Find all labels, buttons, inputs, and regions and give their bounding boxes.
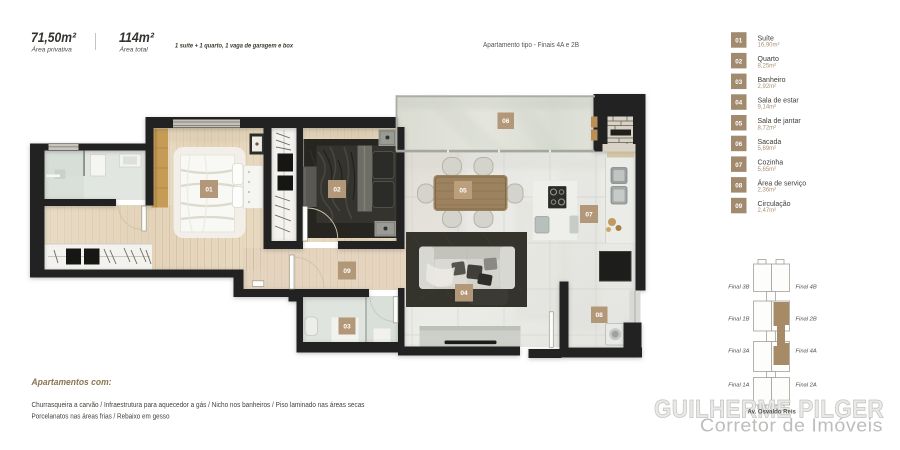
svg-text:08: 08 bbox=[735, 183, 742, 190]
svg-text:03: 03 bbox=[735, 79, 742, 86]
svg-text:Porcelanatos nas áreas frias /: Porcelanatos nas áreas frias / Rebaixo e… bbox=[32, 414, 170, 421]
svg-text:Área total: Área total bbox=[119, 45, 149, 54]
svg-text:03: 03 bbox=[343, 323, 351, 330]
svg-text:16,90m²: 16,90m² bbox=[758, 43, 780, 49]
svg-text:2,36m²: 2,36m² bbox=[758, 188, 777, 194]
svg-text:9,14m²: 9,14m² bbox=[758, 105, 777, 111]
svg-text:Suíte: Suíte bbox=[758, 35, 774, 42]
svg-text:Final 2A: Final 2A bbox=[796, 383, 817, 389]
svg-text:Final 2B: Final 2B bbox=[796, 317, 817, 323]
svg-text:8,72m²: 8,72m² bbox=[758, 125, 777, 131]
svg-text:Sala de estar: Sala de estar bbox=[758, 98, 800, 105]
svg-text:08: 08 bbox=[596, 312, 604, 319]
svg-text:01: 01 bbox=[735, 38, 742, 45]
svg-text:Circulação: Circulação bbox=[758, 201, 791, 208]
svg-text:09: 09 bbox=[343, 268, 351, 275]
svg-text:Apartamento tipo - Finais 4A e: Apartamento tipo - Finais 4A e 2B bbox=[483, 40, 579, 49]
svg-text:Banheiro: Banheiro bbox=[758, 77, 786, 84]
svg-text:Final 1A: Final 1A bbox=[728, 383, 749, 389]
svg-text:Churrasqueira a carvão / Infra: Churrasqueira a carvão / Infraestrutura … bbox=[32, 402, 365, 409]
svg-text:Corretor de Imóveis: Corretor de Imóveis bbox=[700, 415, 883, 436]
svg-text:2,92m²: 2,92m² bbox=[758, 84, 777, 90]
svg-text:Apartamentos com:: Apartamentos com: bbox=[31, 377, 112, 388]
svg-text:Sala de jantar: Sala de jantar bbox=[758, 118, 802, 125]
svg-text:Final 4A: Final 4A bbox=[796, 349, 817, 355]
svg-text:Av. Osvaldo Reis: Av. Osvaldo Reis bbox=[748, 410, 797, 416]
svg-text:04: 04 bbox=[735, 100, 742, 107]
svg-text:71,50m²: 71,50m² bbox=[31, 29, 76, 45]
svg-text:07: 07 bbox=[585, 211, 593, 218]
svg-text:Final 3A: Final 3A bbox=[728, 349, 749, 355]
svg-text:2,47m²: 2,47m² bbox=[758, 208, 777, 214]
svg-text:Área privativa: Área privativa bbox=[31, 45, 73, 54]
svg-text:06: 06 bbox=[502, 118, 510, 125]
svg-text:Final 3B: Final 3B bbox=[728, 285, 749, 291]
svg-text:Sacada: Sacada bbox=[758, 139, 782, 146]
svg-text:Cozinha: Cozinha bbox=[758, 160, 784, 167]
svg-text:05: 05 bbox=[459, 187, 467, 194]
svg-text:Quarto: Quarto bbox=[758, 56, 780, 63]
svg-text:02: 02 bbox=[735, 58, 742, 65]
svg-text:Área de serviço: Área de serviço bbox=[758, 178, 807, 187]
svg-text:02: 02 bbox=[333, 186, 341, 193]
svg-text:09: 09 bbox=[735, 203, 742, 210]
svg-text:06: 06 bbox=[735, 141, 742, 148]
svg-text:04: 04 bbox=[460, 290, 468, 297]
svg-text:Final 1B: Final 1B bbox=[728, 317, 749, 323]
svg-text:05: 05 bbox=[735, 120, 742, 127]
svg-text:5,69m²: 5,69m² bbox=[758, 146, 777, 152]
svg-text:1 suíte + 1 quarto, 1 vaga de: 1 suíte + 1 quarto, 1 vaga de garagem e … bbox=[175, 43, 293, 50]
svg-text:8,25m²: 8,25m² bbox=[758, 63, 777, 69]
svg-text:Final 4B: Final 4B bbox=[796, 285, 817, 291]
svg-text:01: 01 bbox=[205, 186, 213, 193]
svg-text:07: 07 bbox=[735, 162, 742, 169]
svg-text:5,65m²: 5,65m² bbox=[758, 167, 777, 173]
svg-text:114m²: 114m² bbox=[119, 29, 154, 45]
